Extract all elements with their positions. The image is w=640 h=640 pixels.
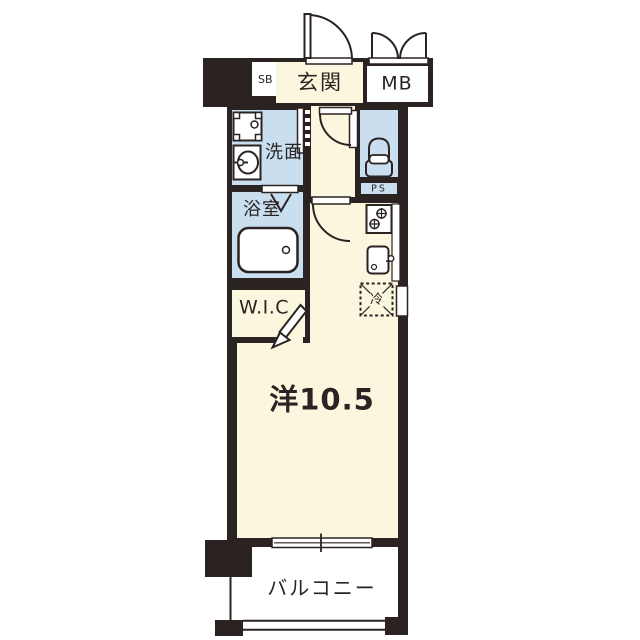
floor-plan: SB 玄関 MB 洗面 PS 浴室 W.I.C 冷 洋10.5 バルコニー [0,0,640,640]
washroom-label: 洗面 [265,144,303,162]
mb-door-left-arc [372,33,398,59]
bathroom-label: 浴室 [243,201,281,219]
balcony-corner-right [385,617,408,635]
main-room-label: 洋10.5 [269,386,375,415]
balcony-railing [243,621,391,630]
kitchen-window [397,286,408,316]
washer-pan-corner [234,135,240,141]
washer-faucet-icon [251,121,258,128]
entrance-door-leaf [305,14,311,58]
main-door-arc [313,204,350,241]
vanity-faucet-icon [238,160,244,166]
balcony-corner-left [215,620,243,636]
washer-pan-corner [256,113,262,119]
shoe-box-label: SB [258,74,270,86]
main-door-sill [312,197,350,204]
mb-door-right-arc [400,33,426,59]
toilet-seat-icon [370,155,389,164]
plan-overlay [0,0,640,640]
refrigerator-label: 冷 [369,293,384,306]
entrance-door-arc [311,15,353,59]
kitchen-counter [392,204,400,281]
toilet-door-leaf [320,108,352,115]
mail-box-label: MB [381,75,412,94]
toilet-door-gap [350,111,358,148]
washer-pan-corner [256,135,262,141]
walk-in-closet-label: W.I.C [239,299,289,318]
toilet-door-arc [320,114,351,145]
bathtub-drain [283,247,290,254]
kitchen-sink-icon [368,247,389,274]
kitchen-faucet-icon [388,256,394,262]
entrance-door-sill [306,58,352,64]
pipe-space-label: PS [371,184,387,194]
entrance-label: 玄関 [297,73,343,94]
washer-pan-corner [234,113,240,119]
balcony-label: バルコニー [267,578,377,598]
pillar-left [205,540,252,577]
balcony-right-wall [398,547,408,619]
bathroom-door-sill [262,186,298,193]
